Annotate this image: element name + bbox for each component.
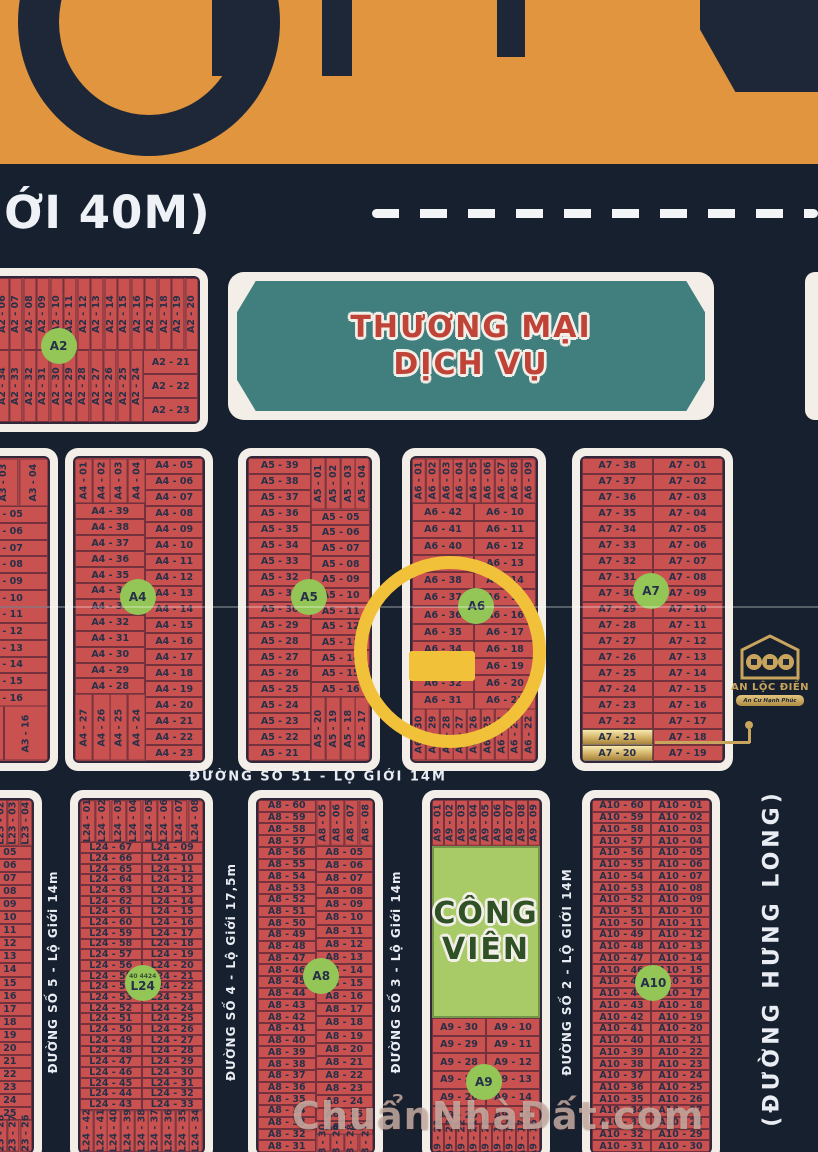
lot-L24-41[interactable]: L24 - 41 <box>94 1110 108 1152</box>
lot-A10-48[interactable]: A10 - 48 <box>592 941 651 953</box>
lot-A10-59[interactable]: A10 - 59 <box>592 812 651 824</box>
lot-A7-19[interactable]: A7 - 19 <box>653 745 724 761</box>
lot-L24-48[interactable]: L24 - 48 <box>80 1046 142 1057</box>
lot-A4-28[interactable]: A4 - 28 <box>75 678 145 694</box>
lot-A10-41[interactable]: A10 - 41 <box>592 1023 651 1035</box>
lot-A2-12[interactable]: A2 - 12 <box>77 278 90 350</box>
lot-A4-27[interactable]: A4 - 27 <box>75 694 93 761</box>
lot-A4-25[interactable]: A4 - 25 <box>110 694 128 761</box>
lot-L24-36[interactable]: L24 - 36 <box>162 1110 176 1152</box>
lot-A3-13[interactable]: A3 - 13 <box>0 640 48 657</box>
lot-A6-05[interactable]: A6 - 05 <box>467 458 481 503</box>
lot-A10-03[interactable]: A10 - 03 <box>651 823 710 835</box>
lot-A5-33[interactable]: A5 - 33 <box>248 554 311 570</box>
lot-L23-06[interactable]: L23 - 06 <box>0 859 32 872</box>
lot-A9-29[interactable]: A9 - 29 <box>432 1036 486 1054</box>
lot-A6-12[interactable]: A6 - 12 <box>474 538 536 555</box>
lot-A8-54[interactable]: A8 - 54 <box>258 870 316 882</box>
lot-A4-38[interactable]: A4 - 38 <box>75 519 145 535</box>
lot-A8-06[interactable]: A8 - 06 <box>330 800 344 846</box>
lot-A7-21[interactable]: A7 - 21 <box>582 729 653 745</box>
lot-A2-07[interactable]: A2 - 07 <box>9 278 22 350</box>
lot-L23-04[interactable]: L23 - 04 <box>20 800 32 846</box>
lot-A3-11[interactable]: A3 - 11 <box>0 607 48 624</box>
lot-L24-14[interactable]: L24 - 14 <box>142 896 204 907</box>
lot-A2-13[interactable]: A2 - 13 <box>90 278 103 350</box>
lot-A4-36[interactable]: A4 - 36 <box>75 551 145 567</box>
lot-A5-39[interactable]: A5 - 39 <box>248 458 311 474</box>
lot-A8-05[interactable]: A8 - 05 <box>316 846 374 859</box>
lot-A8-48[interactable]: A8 - 48 <box>258 941 316 953</box>
lot-A10-11[interactable]: A10 - 11 <box>651 917 710 929</box>
lot-L23-18[interactable]: L23 - 18 <box>0 1016 32 1029</box>
lot-A10-54[interactable]: A10 - 54 <box>592 870 651 882</box>
lot-A9-30[interactable]: A9 - 30 <box>432 1018 486 1036</box>
lot-A3-07[interactable]: A3 - 07 <box>0 540 48 557</box>
lot-A2-08[interactable]: A2 - 08 <box>23 278 36 350</box>
lot-A8-11[interactable]: A8 - 11 <box>316 925 374 938</box>
lot-A8-09[interactable]: A8 - 09 <box>316 898 374 911</box>
lot-L24-17[interactable]: L24 - 17 <box>142 928 204 939</box>
lot-A4-39[interactable]: A4 - 39 <box>75 503 145 519</box>
lot-A3-14[interactable]: A3 - 14 <box>0 657 48 674</box>
lot-A10-19[interactable]: A10 - 19 <box>651 1011 710 1023</box>
lot-L24-13[interactable]: L24 - 13 <box>142 885 204 896</box>
lot-A7-20[interactable]: A7 - 20 <box>582 745 653 761</box>
lot-A7-02[interactable]: A7 - 02 <box>653 474 724 490</box>
lot-A8-17[interactable]: A8 - 17 <box>316 1003 374 1016</box>
lot-A9-08[interactable]: A9 - 08 <box>516 800 528 846</box>
lot-A8-55[interactable]: A8 - 55 <box>258 859 316 871</box>
lot-A2-17[interactable]: A2 - 17 <box>144 278 157 350</box>
lot-A10-24[interactable]: A10 - 24 <box>651 1070 710 1082</box>
lot-L24-09[interactable]: L24 - 09 <box>142 842 204 853</box>
lot-L24-12[interactable]: L24 - 12 <box>142 874 204 885</box>
lot-A8-38[interactable]: A8 - 38 <box>258 1058 316 1070</box>
lot-A6-22[interactable]: A6 - 22 <box>522 709 536 761</box>
lot-A4-10[interactable]: A4 - 10 <box>145 538 203 554</box>
lot-A3-05[interactable]: A3 - 05 <box>0 506 48 523</box>
lot-A4-16[interactable]: A4 - 16 <box>145 633 203 649</box>
lot-A10-22[interactable]: A10 - 22 <box>651 1046 710 1058</box>
lot-A5-35[interactable]: A5 - 35 <box>248 522 311 538</box>
lot-A6-42[interactable]: A6 - 42 <box>412 503 474 520</box>
commercial-block[interactable]: THƯƠNG MẠI DỊCH VỤ <box>228 272 714 420</box>
lot-A8-47[interactable]: A8 - 47 <box>258 953 316 965</box>
lot-A4-22[interactable]: A4 - 22 <box>145 729 203 745</box>
lot-L24-28[interactable]: L24 - 28 <box>142 1046 204 1057</box>
lot-A3-03[interactable]: A3 - 03 <box>0 458 19 506</box>
lot-L24-19[interactable]: L24 - 19 <box>142 949 204 960</box>
lot-A10-01[interactable]: A10 - 01 <box>651 800 710 812</box>
lot-L24-25[interactable]: L24 - 25 <box>142 1013 204 1024</box>
lot-A2-25[interactable]: A2 - 25 <box>117 350 130 422</box>
lot-A8-44[interactable]: A8 - 44 <box>258 988 316 1000</box>
lot-A6-04[interactable]: A6 - 04 <box>453 458 467 503</box>
lot-A5-18[interactable]: A5 - 18 <box>341 697 356 761</box>
lot-A3-08[interactable]: A3 - 08 <box>0 556 48 573</box>
lot-L24-04[interactable]: L24 - 04 <box>126 800 141 842</box>
lot-A5-36[interactable]: A5 - 36 <box>248 506 311 522</box>
lot-A6-09[interactable]: A6 - 09 <box>522 458 536 503</box>
lot-A7-26[interactable]: A7 - 26 <box>582 649 653 665</box>
lot-A6-07[interactable]: A6 - 07 <box>495 458 509 503</box>
lot-A6-06[interactable]: A6 - 06 <box>481 458 495 503</box>
lot-A4-29[interactable]: A4 - 29 <box>75 663 145 679</box>
lot-A8-08[interactable]: A8 - 08 <box>359 800 373 846</box>
lot-L24-31[interactable]: L24 - 31 <box>142 1078 204 1089</box>
lot-L24-67[interactable]: L24 - 67 <box>80 842 142 853</box>
lot-A7-03[interactable]: A7 - 03 <box>653 490 724 506</box>
lot-A4-30[interactable]: A4 - 30 <box>75 647 145 663</box>
lot-A7-13[interactable]: A7 - 13 <box>653 649 724 665</box>
lot-A3-16[interactable]: A3 - 16 <box>0 690 48 707</box>
lot-A8-49[interactable]: A8 - 49 <box>258 929 316 941</box>
lot-L24-59[interactable]: L24 - 59 <box>80 928 142 939</box>
lot-A4-12[interactable]: A4 - 12 <box>145 570 203 586</box>
lot-L23-09[interactable]: L23 - 09 <box>0 898 32 911</box>
lot-A6-11[interactable]: A6 - 11 <box>474 521 536 538</box>
lot-A8-20[interactable]: A8 - 20 <box>316 1043 374 1056</box>
lot-A8-41[interactable]: A8 - 41 <box>258 1023 316 1035</box>
lot-L23-07[interactable]: L23 - 07 <box>0 872 32 885</box>
lot-A4-23[interactable]: A4 - 23 <box>145 745 203 761</box>
lot-A6-03[interactable]: A6 - 03 <box>440 458 454 503</box>
lot-A7-32[interactable]: A7 - 32 <box>582 554 653 570</box>
lot-A8-56[interactable]: A8 - 56 <box>258 847 316 859</box>
lot-A7-07[interactable]: A7 - 07 <box>653 554 724 570</box>
lot-L23-12[interactable]: L23 - 12 <box>0 937 32 950</box>
lot-A3-09[interactable]: A3 - 09 <box>0 573 48 590</box>
lot-L24-50[interactable]: L24 - 50 <box>80 1024 142 1035</box>
lot-L24-52[interactable]: L24 - 52 <box>80 1003 142 1014</box>
lot-A10-20[interactable]: A10 - 20 <box>651 1023 710 1035</box>
lot-L24-18[interactable]: L24 - 18 <box>142 939 204 950</box>
lot-L24-62[interactable]: L24 - 62 <box>80 896 142 907</box>
lot-A4-24[interactable]: A4 - 24 <box>128 694 146 761</box>
lot-A10-60[interactable]: A10 - 60 <box>592 800 651 812</box>
lot-A7-11[interactable]: A7 - 11 <box>653 618 724 634</box>
lot-L24-40[interactable]: L24 - 40 <box>107 1110 121 1152</box>
lot-L23-24[interactable]: L23 - 24 <box>0 1094 32 1107</box>
lot-A7-01[interactable]: A7 - 01 <box>653 458 724 474</box>
lot-A7-38[interactable]: A7 - 38 <box>582 458 653 474</box>
lot-A10-09[interactable]: A10 - 09 <box>651 894 710 906</box>
lot-A7-25[interactable]: A7 - 25 <box>582 665 653 681</box>
lot-A6-10[interactable]: A6 - 10 <box>474 503 536 520</box>
lot-A8-22[interactable]: A8 - 22 <box>316 1069 374 1082</box>
lot-A10-49[interactable]: A10 - 49 <box>592 929 651 941</box>
lot-A10-52[interactable]: A10 - 52 <box>592 894 651 906</box>
lot-A3-10[interactable]: A3 - 10 <box>0 590 48 607</box>
lot-A7-14[interactable]: A7 - 14 <box>653 665 724 681</box>
lot-A4-26[interactable]: A4 - 26 <box>93 694 111 761</box>
lot-L23-27[interactable]: L23 - 27 <box>7 1120 19 1152</box>
lot-A6-41[interactable]: A6 - 41 <box>412 521 474 538</box>
lot-L24-42[interactable]: L24 - 42 <box>80 1110 94 1152</box>
lot-A3-16[interactable]: A3 - 16 <box>4 706 48 761</box>
lot-A8-50[interactable]: A8 - 50 <box>258 917 316 929</box>
lot-A5-22[interactable]: A5 - 22 <box>248 729 311 745</box>
lot-L24-33[interactable]: L24 - 33 <box>142 1099 204 1110</box>
lot-A8-39[interactable]: A8 - 39 <box>258 1046 316 1058</box>
lot-L24-24[interactable]: L24 - 24 <box>142 1003 204 1014</box>
lot-A10-57[interactable]: A10 - 57 <box>592 835 651 847</box>
lot-A10-43[interactable]: A10 - 43 <box>592 999 651 1011</box>
lot-A5-02[interactable]: A5 - 02 <box>326 458 341 510</box>
lot-A2-18[interactable]: A2 - 18 <box>158 278 171 350</box>
lot-L24-30[interactable]: L24 - 30 <box>142 1067 204 1078</box>
lot-A10-39[interactable]: A10 - 39 <box>592 1046 651 1058</box>
lot-A10-13[interactable]: A10 - 13 <box>651 941 710 953</box>
lot-L23-22[interactable]: L23 - 22 <box>0 1068 32 1081</box>
lot-A7-33[interactable]: A7 - 33 <box>582 538 653 554</box>
lot-L24-58[interactable]: L24 - 58 <box>80 939 142 950</box>
lot-A5-26[interactable]: A5 - 26 <box>248 665 311 681</box>
lot-A2-23[interactable]: A2 - 23 <box>143 398 198 422</box>
lot-A2-16[interactable]: A2 - 16 <box>131 278 144 350</box>
lot-A10-40[interactable]: A10 - 40 <box>592 1035 651 1047</box>
lot-L23-20[interactable]: L23 - 20 <box>0 1042 32 1055</box>
lot-L23-21[interactable]: L23 - 21 <box>0 1055 32 1068</box>
lot-L24-43[interactable]: L24 - 43 <box>80 1099 142 1110</box>
lot-A3-06[interactable]: A3 - 06 <box>0 523 48 540</box>
lot-A10-07[interactable]: A10 - 07 <box>651 870 710 882</box>
lot-A8-36[interactable]: A8 - 36 <box>258 1082 316 1094</box>
lot-A10-42[interactable]: A10 - 42 <box>592 1011 651 1023</box>
lot-A4-20[interactable]: A4 - 20 <box>145 697 203 713</box>
lot-A8-31[interactable]: A8 - 31 <box>258 1140 316 1152</box>
lot-A2-34[interactable]: A2 - 34 <box>0 350 9 422</box>
lot-L23-23[interactable]: L23 - 23 <box>0 1081 32 1094</box>
lot-A9-06[interactable]: A9 - 06 <box>492 800 504 846</box>
lot-A10-56[interactable]: A10 - 56 <box>592 847 651 859</box>
lot-L24-11[interactable]: L24 - 11 <box>142 864 204 875</box>
lot-A5-38[interactable]: A5 - 38 <box>248 474 311 490</box>
lot-A5-08[interactable]: A5 - 08 <box>311 556 370 572</box>
lot-A2-19[interactable]: A2 - 19 <box>171 278 184 350</box>
lot-A7-24[interactable]: A7 - 24 <box>582 681 653 697</box>
lot-A6-02[interactable]: A6 - 02 <box>426 458 440 503</box>
lot-A2-28[interactable]: A2 - 28 <box>76 350 89 422</box>
lot-L24-38[interactable]: L24 - 38 <box>135 1110 149 1152</box>
lot-A3-12[interactable]: A3 - 12 <box>0 623 48 640</box>
lot-A4-06[interactable]: A4 - 06 <box>145 474 203 490</box>
lot-A8-59[interactable]: A8 - 59 <box>258 812 316 824</box>
lot-L23-05[interactable]: L23 - 05 <box>0 846 32 859</box>
lot-A4-17[interactable]: A4 - 17 <box>145 649 203 665</box>
lot-L24-39[interactable]: L24 - 39 <box>121 1110 135 1152</box>
lot-A8-07[interactable]: A8 - 07 <box>316 872 374 885</box>
lot-A10-58[interactable]: A10 - 58 <box>592 823 651 835</box>
lot-A4-05[interactable]: A4 - 05 <box>145 458 203 474</box>
lot-A6-01[interactable]: A6 - 01 <box>412 458 426 503</box>
lot-A5-03[interactable]: A5 - 03 <box>341 458 356 510</box>
lot-A4-31[interactable]: A4 - 31 <box>75 631 145 647</box>
lot-L24-44[interactable]: L24 - 44 <box>80 1088 142 1099</box>
lot-A5-28[interactable]: A5 - 28 <box>248 633 311 649</box>
lot-A10-51[interactable]: A10 - 51 <box>592 906 651 918</box>
lot-L24-60[interactable]: L24 - 60 <box>80 917 142 928</box>
lot-A7-23[interactable]: A7 - 23 <box>582 697 653 713</box>
lot-A3-15[interactable]: A3 - 15 <box>0 673 48 690</box>
lot-A7-17[interactable]: A7 - 17 <box>653 713 724 729</box>
lot-L24-46[interactable]: L24 - 46 <box>80 1067 142 1078</box>
lot-A7-36[interactable]: A7 - 36 <box>582 490 653 506</box>
lot-A8-40[interactable]: A8 - 40 <box>258 1035 316 1047</box>
lot-L24-15[interactable]: L24 - 15 <box>142 906 204 917</box>
lot-A8-52[interactable]: A8 - 52 <box>258 894 316 906</box>
lot-A7-16[interactable]: A7 - 16 <box>653 697 724 713</box>
lot-L24-34[interactable]: L24 - 34 <box>189 1110 203 1152</box>
lot-A4-18[interactable]: A4 - 18 <box>145 665 203 681</box>
lot-A2-21[interactable]: A2 - 21 <box>143 350 198 374</box>
lot-A7-22[interactable]: A7 - 22 <box>582 713 653 729</box>
lot-A5-07[interactable]: A5 - 07 <box>311 541 370 557</box>
lot-A8-42[interactable]: A8 - 42 <box>258 1011 316 1023</box>
lot-A8-05[interactable]: A8 - 05 <box>316 800 330 846</box>
lot-A10-08[interactable]: A10 - 08 <box>651 882 710 894</box>
lot-A9-02[interactable]: A9 - 02 <box>444 800 456 846</box>
lot-L24-49[interactable]: L24 - 49 <box>80 1035 142 1046</box>
lot-A8-57[interactable]: A8 - 57 <box>258 835 316 847</box>
lot-A5-29[interactable]: A5 - 29 <box>248 618 311 634</box>
lot-A9-05[interactable]: A9 - 05 <box>480 800 492 846</box>
lot-L24-64[interactable]: L24 - 64 <box>80 874 142 885</box>
lot-A9-03[interactable]: A9 - 03 <box>456 800 468 846</box>
lot-L24-66[interactable]: L24 - 66 <box>80 853 142 864</box>
lot-A4-02[interactable]: A4 - 02 <box>93 458 111 503</box>
lot-A10-14[interactable]: A10 - 14 <box>651 953 710 965</box>
lot-A10-04[interactable]: A10 - 04 <box>651 835 710 847</box>
lot-A8-53[interactable]: A8 - 53 <box>258 882 316 894</box>
lot-A10-31[interactable]: A10 - 31 <box>592 1140 651 1152</box>
lot-L24-03[interactable]: L24 - 03 <box>111 800 126 842</box>
lot-L24-08[interactable]: L24 - 08 <box>188 800 203 842</box>
lot-L23-16[interactable]: L23 - 16 <box>0 990 32 1003</box>
lot-L24-61[interactable]: L24 - 61 <box>80 906 142 917</box>
lot-A4-01[interactable]: A4 - 01 <box>75 458 93 503</box>
lot-L24-26[interactable]: L24 - 26 <box>142 1024 204 1035</box>
lot-A8-07[interactable]: A8 - 07 <box>344 800 358 846</box>
lot-L24-65[interactable]: L24 - 65 <box>80 864 142 875</box>
lot-A10-06[interactable]: A10 - 06 <box>651 859 710 871</box>
lot-A10-10[interactable]: A10 - 10 <box>651 906 710 918</box>
lot-A10-18[interactable]: A10 - 18 <box>651 999 710 1011</box>
lot-L24-45[interactable]: L24 - 45 <box>80 1078 142 1089</box>
lot-A8-21[interactable]: A8 - 21 <box>316 1056 374 1069</box>
lot-L24-27[interactable]: L24 - 27 <box>142 1035 204 1046</box>
lot-A4-07[interactable]: A4 - 07 <box>145 490 203 506</box>
lot-A7-15[interactable]: A7 - 15 <box>653 681 724 697</box>
lot-A7-28[interactable]: A7 - 28 <box>582 618 653 634</box>
lot-A4-21[interactable]: A4 - 21 <box>145 713 203 729</box>
lot-A9-01[interactable]: A9 - 01 <box>432 800 444 846</box>
lot-A6-08[interactable]: A6 - 08 <box>508 458 522 503</box>
lot-L23-26[interactable]: L23 - 26 <box>20 1120 32 1152</box>
lot-A8-06[interactable]: A8 - 06 <box>316 859 374 872</box>
lot-A8-12[interactable]: A8 - 12 <box>316 938 374 951</box>
lot-L24-05[interactable]: L24 - 05 <box>142 800 157 842</box>
lot-L23-11[interactable]: L23 - 11 <box>0 924 32 937</box>
lot-A8-58[interactable]: A8 - 58 <box>258 823 316 835</box>
lot-A7-27[interactable]: A7 - 27 <box>582 633 653 649</box>
lot-A5-06[interactable]: A5 - 06 <box>311 525 370 541</box>
lot-A4-32[interactable]: A4 - 32 <box>75 615 145 631</box>
lot-A10-53[interactable]: A10 - 53 <box>592 882 651 894</box>
lot-A4-08[interactable]: A4 - 08 <box>145 506 203 522</box>
lot-A7-06[interactable]: A7 - 06 <box>653 538 724 554</box>
lot-L24-57[interactable]: L24 - 57 <box>80 949 142 960</box>
lot-A7-04[interactable]: A7 - 04 <box>653 506 724 522</box>
lot-A2-22[interactable]: A2 - 22 <box>143 374 198 398</box>
lot-A8-08[interactable]: A8 - 08 <box>316 885 374 898</box>
lot-A2-32[interactable]: A2 - 32 <box>23 350 36 422</box>
lot-A8-19[interactable]: A8 - 19 <box>316 1030 374 1043</box>
lot-A10-02[interactable]: A10 - 02 <box>651 812 710 824</box>
lot-L24-06[interactable]: L24 - 06 <box>157 800 172 842</box>
lot-A8-43[interactable]: A8 - 43 <box>258 999 316 1011</box>
lot-L24-63[interactable]: L24 - 63 <box>80 885 142 896</box>
lot-L24-10[interactable]: L24 - 10 <box>142 853 204 864</box>
lot-L24-51[interactable]: L24 - 51 <box>80 1013 142 1024</box>
lot-L24-02[interactable]: L24 - 02 <box>95 800 110 842</box>
lot-A10-25[interactable]: A10 - 25 <box>651 1082 710 1094</box>
lot-A2-15[interactable]: A2 - 15 <box>117 278 130 350</box>
lot-A7-35[interactable]: A7 - 35 <box>582 506 653 522</box>
lot-A4-37[interactable]: A4 - 37 <box>75 535 145 551</box>
lot-L24-35[interactable]: L24 - 35 <box>176 1110 190 1152</box>
lot-A2-33[interactable]: A2 - 33 <box>9 350 22 422</box>
lot-A4-03[interactable]: A4 - 03 <box>110 458 128 503</box>
lot-A2-14[interactable]: A2 - 14 <box>104 278 117 350</box>
lot-A8-37[interactable]: A8 - 37 <box>258 1070 316 1082</box>
lot-A2-24[interactable]: A2 - 24 <box>130 350 143 422</box>
lot-A9-04[interactable]: A9 - 04 <box>468 800 480 846</box>
lot-A10-47[interactable]: A10 - 47 <box>592 953 651 965</box>
lot-A10-36[interactable]: A10 - 36 <box>592 1082 651 1094</box>
lot-L23-15[interactable]: L23 - 15 <box>0 977 32 990</box>
lot-A10-38[interactable]: A10 - 38 <box>592 1058 651 1070</box>
lot-A5-19[interactable]: A5 - 19 <box>326 697 341 761</box>
lot-L24-32[interactable]: L24 - 32 <box>142 1088 204 1099</box>
lot-A2-27[interactable]: A2 - 27 <box>90 350 103 422</box>
lot-L23-10[interactable]: L23 - 10 <box>0 911 32 924</box>
lot-A10-55[interactable]: A10 - 55 <box>592 859 651 871</box>
lot-L24-01[interactable]: L24 - 01 <box>80 800 95 842</box>
lot-A2-26[interactable]: A2 - 26 <box>103 350 116 422</box>
lot-A5-24[interactable]: A5 - 24 <box>248 697 311 713</box>
lot-A10-12[interactable]: A10 - 12 <box>651 929 710 941</box>
lot-A9-09[interactable]: A9 - 09 <box>528 800 540 846</box>
lot-L23-08[interactable]: L23 - 08 <box>0 885 32 898</box>
lot-L24-16[interactable]: L24 - 16 <box>142 917 204 928</box>
lot-A8-60[interactable]: A8 - 60 <box>258 800 316 812</box>
lot-A5-01[interactable]: A5 - 01 <box>311 458 326 510</box>
lot-A8-10[interactable]: A8 - 10 <box>316 911 374 924</box>
lot-A9-11[interactable]: A9 - 11 <box>486 1036 540 1054</box>
lot-L23-03[interactable]: L23 - 03 <box>7 800 19 846</box>
lot-A10-21[interactable]: A10 - 21 <box>651 1035 710 1047</box>
lot-L24-07[interactable]: L24 - 07 <box>172 800 187 842</box>
lot-A5-25[interactable]: A5 - 25 <box>248 681 311 697</box>
lot-A2-20[interactable]: A2 - 20 <box>185 278 198 350</box>
lot-L24-37[interactable]: L24 - 37 <box>148 1110 162 1152</box>
lot-A10-30[interactable]: A10 - 30 <box>651 1140 710 1152</box>
lot-A4-04[interactable]: A4 - 04 <box>128 458 146 503</box>
lot-L23-13[interactable]: L23 - 13 <box>0 950 32 963</box>
lot-A4-11[interactable]: A4 - 11 <box>145 554 203 570</box>
